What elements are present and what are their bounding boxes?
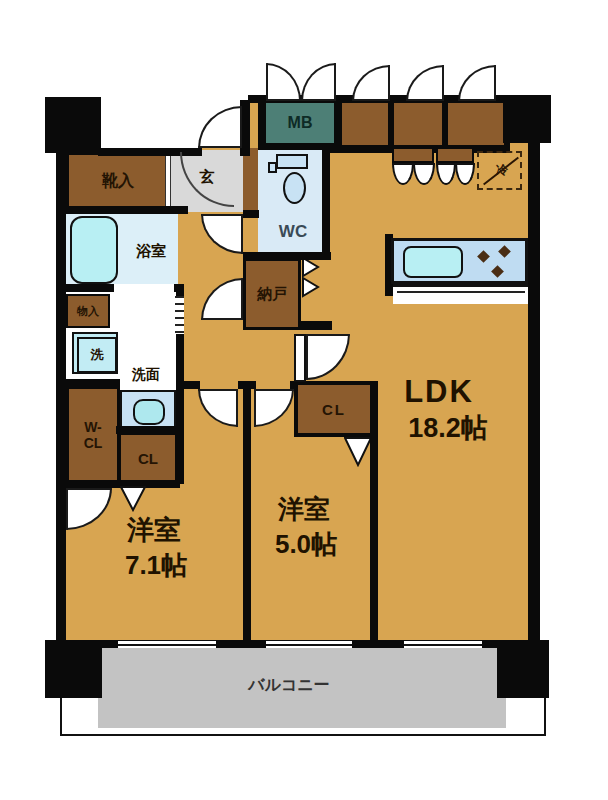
kitchen-sink	[403, 246, 463, 278]
meter-box: MB	[264, 101, 336, 145]
storage-room: 納戸	[243, 258, 301, 330]
shoe-cabinet-label: 靴入	[102, 171, 134, 192]
closet-fold-door	[120, 486, 146, 512]
sliding-window	[404, 641, 482, 648]
wall	[298, 321, 332, 330]
closet-second: CL	[294, 381, 374, 437]
pillar	[45, 640, 102, 698]
washer-label: 洗	[91, 346, 104, 364]
pillar	[497, 640, 549, 698]
entrance-partition	[165, 152, 171, 210]
small-storage: 物入	[66, 294, 110, 328]
wall	[62, 379, 120, 387]
bifold-door	[392, 163, 434, 185]
sliding-window	[266, 641, 352, 648]
closet-fold-door	[344, 437, 372, 467]
wall	[243, 389, 251, 640]
shoe-cabinet: 靴入	[66, 152, 170, 210]
bathroom-door	[114, 284, 174, 293]
cabinet-door-arc	[458, 65, 496, 101]
toilet-label: WC	[279, 222, 307, 242]
entrance-label: 玄	[200, 168, 215, 187]
meter-box-label: MB	[288, 114, 313, 132]
counter-edge-line	[393, 284, 528, 287]
meter-box-door-arc	[266, 63, 301, 101]
hall-cabinet	[340, 101, 390, 147]
wall	[243, 252, 331, 260]
ldk-size-label: 18.2帖	[408, 410, 488, 446]
walk-in-closet-label: W- CL	[84, 419, 103, 451]
ldk-cabinet	[436, 147, 474, 163]
bedroom-second-size-label: 5.0帖	[275, 527, 337, 562]
ldk-label: LDK	[404, 374, 474, 410]
toilet-tank	[276, 154, 308, 169]
wall	[116, 426, 178, 434]
wall-strip	[243, 148, 258, 212]
wall	[56, 148, 66, 648]
floor-plan: 靴入 MB 冷 物入 洗 W- CL CL	[0, 0, 608, 800]
wall	[66, 284, 114, 292]
pillar	[45, 97, 101, 153]
wall	[290, 381, 298, 389]
cabinet-door-arc	[352, 65, 390, 101]
door-leaf	[294, 334, 306, 382]
wall	[243, 210, 259, 218]
ldk-cabinet	[392, 147, 434, 163]
bifold-door	[436, 163, 474, 185]
refrigerator-label: 冷	[496, 162, 508, 179]
wall	[322, 143, 330, 260]
counter-edge-line	[397, 291, 525, 293]
bedroom-second-label: 洋室	[278, 492, 330, 527]
hall-cabinet	[446, 101, 506, 147]
bedroom-main-label: 洋室	[127, 512, 181, 548]
counter-edge	[393, 284, 528, 304]
storage-room-label: 納戸	[257, 285, 287, 304]
entrance-door-arc	[198, 106, 242, 148]
pillar	[503, 95, 551, 143]
washroom-label: 洗面	[132, 366, 160, 384]
bathroom-label: 浴室	[136, 242, 166, 261]
meter-box-door-arc	[301, 63, 336, 101]
toilet-paper-holder	[268, 162, 277, 173]
sliding-window	[118, 641, 216, 648]
wall	[528, 140, 540, 648]
closet-second-label: CL	[322, 401, 346, 418]
wall	[370, 381, 378, 640]
bedroom-main-size-label: 7.1帖	[125, 548, 187, 583]
hatch-marks	[175, 296, 184, 334]
closet-main-label: CL	[138, 450, 158, 467]
refrigerator-space: 冷	[477, 151, 522, 190]
wall	[66, 206, 188, 214]
folding-door	[302, 256, 320, 298]
wall	[238, 381, 256, 389]
hall-cabinet	[392, 101, 444, 147]
balcony-label: バルコニー	[248, 675, 330, 696]
cabinet-door-arc	[406, 65, 444, 101]
sink-bowl	[133, 399, 165, 425]
small-storage-label: 物入	[77, 304, 99, 319]
toilet-bowl	[283, 172, 306, 204]
wall	[184, 381, 200, 389]
closet-main: CL	[118, 432, 178, 484]
washing-machine: 洗	[72, 332, 118, 374]
walk-in-closet: W- CL	[66, 386, 120, 484]
bathtub	[70, 216, 118, 284]
washing-machine-inner: 洗	[77, 337, 117, 373]
